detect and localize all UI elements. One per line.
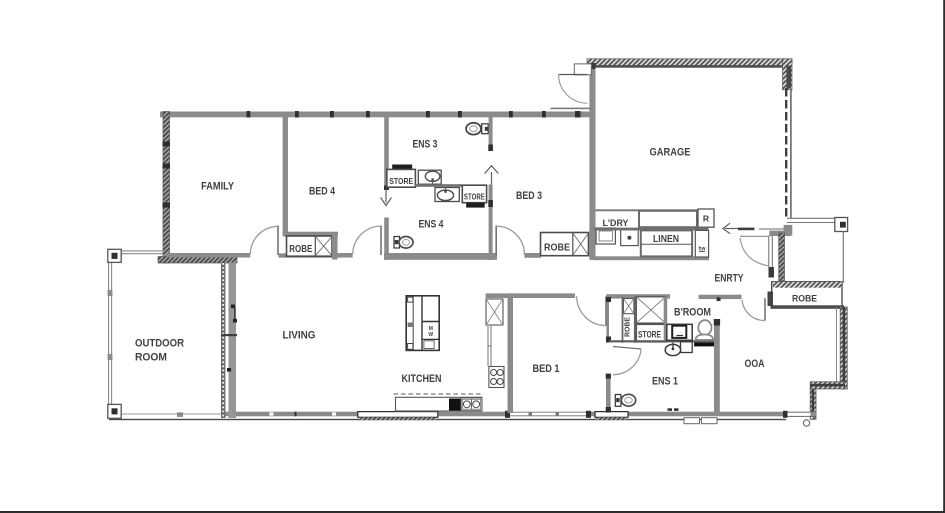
svg-text:ROBE: ROBE [289,243,312,255]
svg-text:LINEN: LINEN [653,234,679,245]
svg-text:ENS 3: ENS 3 [413,138,438,150]
svg-text:LIVING: LIVING [283,329,316,341]
svg-text:BED 3: BED 3 [516,190,542,202]
svg-text:ENS 1: ENS 1 [652,375,678,387]
svg-text:L'DRY: L'DRY [603,218,630,229]
svg-text:ROBE: ROBE [544,242,570,254]
svg-text:STORE: STORE [638,330,661,340]
svg-text:OUTDOOR: OUTDOOR [135,337,184,349]
svg-text:R: R [703,214,709,224]
svg-text:STORE: STORE [464,192,485,202]
svg-text:OOA: OOA [745,358,765,370]
svg-text:STORE: STORE [389,176,413,186]
svg-text:ENS 4: ENS 4 [419,219,445,231]
svg-text:ROBE: ROBE [792,293,817,303]
svg-text:ROOM: ROOM [135,351,167,363]
svg-text:BED 1: BED 1 [533,363,560,375]
svg-text:GARAGE: GARAGE [650,146,691,158]
svg-text:KITCHEN: KITCHEN [402,373,442,385]
svg-text:FAMILY: FAMILY [201,180,235,192]
svg-text:ROBE: ROBE [623,317,632,337]
svg-text:B'ROOM: B'ROOM [674,306,711,318]
svg-text:BED 4: BED 4 [309,186,336,198]
svg-text:W: W [428,332,433,338]
svg-text:ENRTY: ENRTY [715,272,745,284]
